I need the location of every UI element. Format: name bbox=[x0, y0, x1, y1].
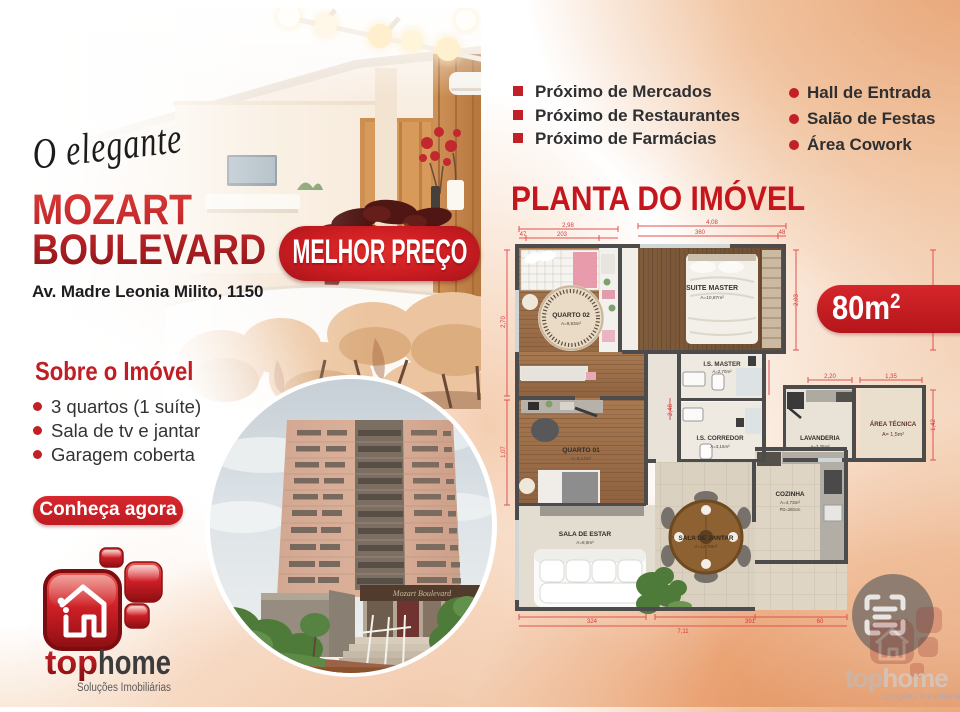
svg-text:I.S. CORREDOR: I.S. CORREDOR bbox=[696, 435, 744, 442]
svg-text:SALA DE ESTAR: SALA DE ESTAR bbox=[559, 531, 612, 538]
svg-text:Mozart Boulevard: Mozart Boulevard bbox=[392, 589, 452, 598]
svg-text:Soluções Imobiliárias: Soluções Imobiliárias bbox=[880, 691, 960, 701]
svg-text:A=9,14m²: A=9,14m² bbox=[571, 456, 592, 461]
svg-text:2,98: 2,98 bbox=[562, 223, 574, 229]
svg-text:home: home bbox=[98, 644, 171, 682]
svg-text:2,48: 2,48 bbox=[668, 404, 674, 416]
svg-text:2,70: 2,70 bbox=[501, 316, 507, 328]
svg-text:48: 48 bbox=[779, 230, 786, 236]
svg-text:LAVANDERIA: LAVANDERIA bbox=[800, 435, 840, 442]
svg-text:A=9,93m²: A=9,93m² bbox=[561, 321, 582, 326]
svg-text:Soluções Imobiliárias: Soluções Imobiliárias bbox=[77, 682, 171, 694]
svg-text:391: 391 bbox=[745, 619, 756, 625]
svg-text:360: 360 bbox=[695, 230, 706, 236]
svg-text:A=12,75m²: A=12,75m² bbox=[695, 544, 718, 549]
svg-text:top: top bbox=[45, 644, 98, 682]
svg-text:A=10,87m²: A=10,87m² bbox=[700, 295, 724, 301]
svg-text:SALA DE JANTAR: SALA DE JANTAR bbox=[678, 535, 733, 542]
svg-text:324: 324 bbox=[587, 619, 598, 625]
svg-text:A=2,70m²: A=2,70m² bbox=[712, 369, 732, 374]
svg-text:2,03: 2,03 bbox=[794, 294, 800, 306]
svg-text:QUARTO 02: QUARTO 02 bbox=[552, 312, 590, 319]
svg-text:tophome: tophome bbox=[845, 663, 948, 693]
svg-text:SUITE MASTER: SUITE MASTER bbox=[686, 285, 738, 292]
svg-text:1,07: 1,07 bbox=[501, 446, 507, 458]
svg-text:A=4,73m²: A=4,73m² bbox=[780, 500, 801, 505]
svg-text:A=3,16m²: A=3,16m² bbox=[710, 444, 730, 449]
svg-text:1,42: 1,42 bbox=[931, 419, 937, 431]
svg-text:1,35: 1,35 bbox=[885, 374, 897, 380]
svg-text:QUARTO 01: QUARTO 01 bbox=[562, 447, 600, 454]
svg-text:COZINHA: COZINHA bbox=[775, 491, 804, 498]
svg-text:60: 60 bbox=[817, 619, 824, 625]
svg-text:203: 203 bbox=[557, 232, 568, 238]
svg-text:I.S. MASTER: I.S. MASTER bbox=[703, 361, 741, 368]
svg-text:ÁREA TÉCNICA: ÁREA TÉCNICA bbox=[870, 420, 917, 428]
svg-text:A=8,9m²: A=8,9m² bbox=[576, 540, 594, 545]
svg-text:A= 1,5m²: A= 1,5m² bbox=[882, 432, 904, 438]
svg-text:47: 47 bbox=[520, 232, 527, 238]
svg-text:PD=260cm: PD=260cm bbox=[780, 507, 801, 512]
svg-text:7,11: 7,11 bbox=[677, 629, 689, 635]
svg-text:2,20: 2,20 bbox=[824, 374, 836, 380]
svg-text:4,08: 4,08 bbox=[706, 220, 718, 226]
